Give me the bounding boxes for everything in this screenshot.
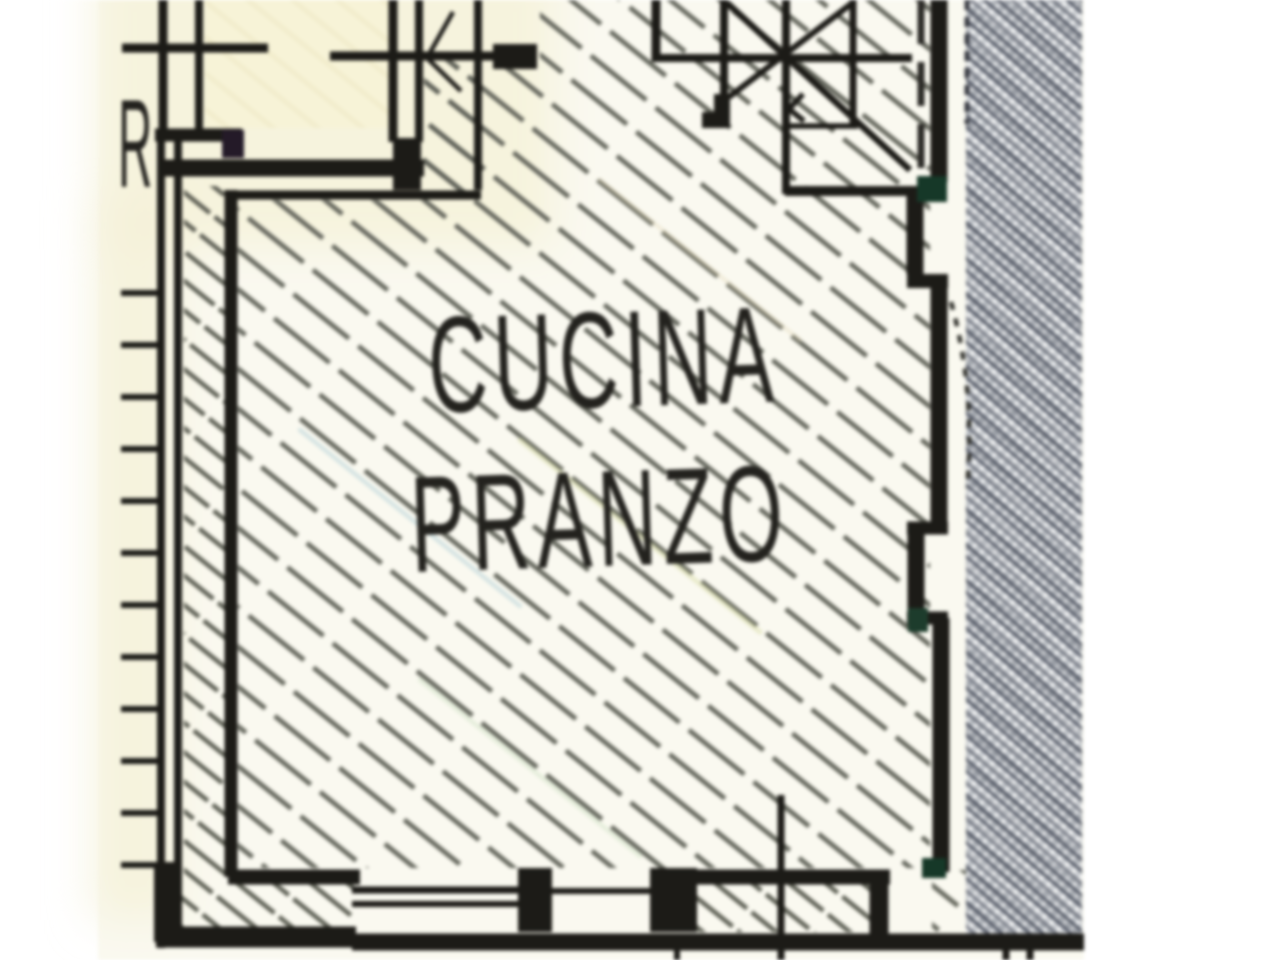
svg-text:R: R	[118, 75, 152, 215]
svg-text:CUCINA: CUCINA	[426, 278, 782, 442]
svg-text:PRANZO: PRANZO	[408, 436, 791, 601]
